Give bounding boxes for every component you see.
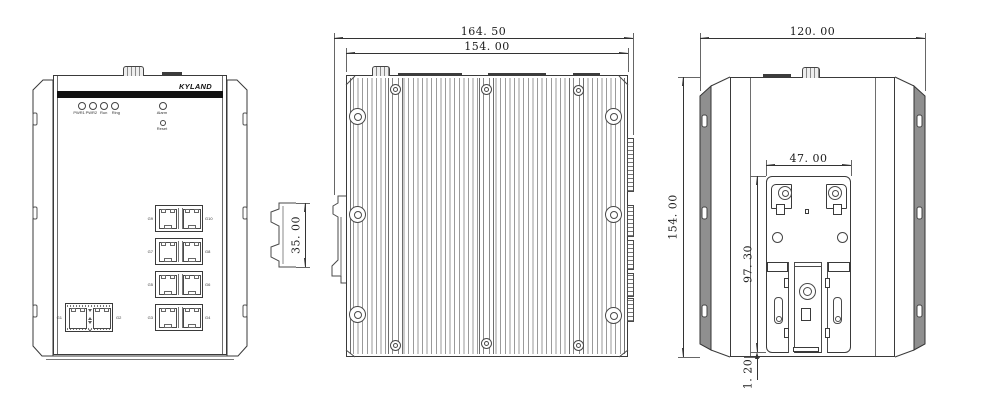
dim-bottom-gap-label: 1. 20 [742,359,755,390]
flange-slot [917,207,922,219]
sfp-label: G2 [116,315,126,320]
flange-slot [702,305,707,317]
port-label: G5 [141,282,153,287]
rj45-port-pair [155,205,203,232]
dim-body-width-label: 154. 00 [464,40,510,53]
clip-slot [774,297,783,324]
switch-dimension-drawing: KYLAND PWR1 PWR2 Run Ring Alarm Reset G9… [0,0,1000,408]
rj45-port [159,242,177,262]
mount-hook-slot [833,204,842,215]
led-label-pwr2: PWR2 [85,110,97,115]
dim-plate-height-label: 97. 30 [742,245,755,283]
mount-hook-slot [776,204,785,215]
rj45-port [159,209,177,229]
top-gasket-strip [763,74,791,77]
clip-side-bracket [767,262,788,272]
rj45-port [183,308,201,328]
rail-tab [825,278,830,288]
extension-line [296,203,310,204]
dim-overall-width: 164. 50 [334,38,633,39]
extension-line [296,267,310,268]
flange-slot [917,305,922,317]
sfp-label: G1 [52,315,62,320]
sfp-slot [93,308,111,329]
flange-slot [33,113,37,125]
flange-slot [917,115,922,127]
dim-rear-width-label: 120. 00 [790,25,836,38]
led-label-pwr1: PWR1 [73,110,85,115]
din-clip-and-rail [260,60,660,370]
led-pwr1 [78,102,86,110]
flange-slot [702,115,707,127]
din-clip-rail [821,262,828,353]
dim-din-rail-label: 35. 00 [290,216,303,254]
port-label: G8 [205,249,219,254]
rj45-port-pair [155,304,203,331]
led-label-run: Run [98,110,110,115]
port-label: G4 [205,315,219,320]
rj45-port [183,209,201,229]
rj45-port [183,275,201,295]
clip-side-bracket [828,262,850,272]
clip-square-hole [801,308,811,321]
rail-tab [825,328,830,338]
led-run [100,102,108,110]
rj45-port-pair [155,271,203,298]
port-label: G6 [205,282,219,287]
mount-hole-icon [828,186,842,200]
port-label: G7 [141,249,153,254]
extension-line [925,33,926,91]
din-clip-side [332,196,346,283]
reset-label: Reset [152,126,172,131]
plate-hole [837,232,848,243]
dim-mount-span: 47. 00 [766,165,851,166]
sfp-slot [69,308,87,329]
rj45-port [183,242,201,262]
flange-slot [702,207,707,219]
led-ring [111,102,119,110]
led-label-ring: Ring [110,110,122,115]
dim-plate-height [757,176,758,352]
port-label: G10 [205,216,219,221]
dim-body-width: 154. 00 [346,53,628,54]
rj45-port-pair [155,238,203,265]
port-label: G9 [141,216,153,221]
rail-tab [784,278,789,288]
dim-line [757,358,758,380]
extension-line [750,176,766,177]
plate-hole [772,232,783,243]
dim-rear-height-label: 154. 00 [667,194,680,240]
led-alarm [159,102,167,110]
extension-line [633,33,634,135]
alarm-label: Alarm [152,110,172,115]
sfp-hatch-top [67,305,111,307]
flange-slot [243,305,247,317]
clip-center-hole [799,283,816,300]
small-hole [805,209,809,214]
extension-line [766,160,767,176]
sfp-cage [65,303,113,332]
dim-mount-span-label: 47. 00 [790,152,828,165]
front-face-inner-line [222,76,223,354]
rj45-port [159,308,177,328]
rail-tab [784,328,789,338]
flange-slot [243,113,247,125]
clip-slot [833,297,842,324]
rj45-port [159,275,177,295]
extension-line [334,33,335,195]
led-pwr2 [89,102,97,110]
top-terminal-connector [802,67,820,78]
top-terminal-connector [123,66,144,76]
dim-overall-width-label: 164. 50 [461,25,507,38]
mount-hole-icon [778,186,792,200]
flange-slot [243,207,247,219]
clip-bottom-tab [793,347,819,352]
din-clip-rail [788,262,795,353]
brand-logo: KYLAND [170,82,212,91]
sfp-arrows-icon [88,309,92,332]
extension-line [851,160,852,176]
port-label: G3 [141,315,153,320]
top-gasket-strip [162,72,182,76]
front-view: KYLAND PWR1 PWR2 Run Ring Alarm Reset G9… [0,0,260,408]
flange-slot [33,207,37,219]
front-face-inner-line [57,76,58,354]
front-black-bar [57,91,223,98]
flange-slot [33,305,37,317]
extension-line [700,33,701,91]
dim-rear-width: 120. 00 [700,38,925,39]
dim-rear-height [683,77,684,357]
dim-din-rail-height [305,203,306,267]
